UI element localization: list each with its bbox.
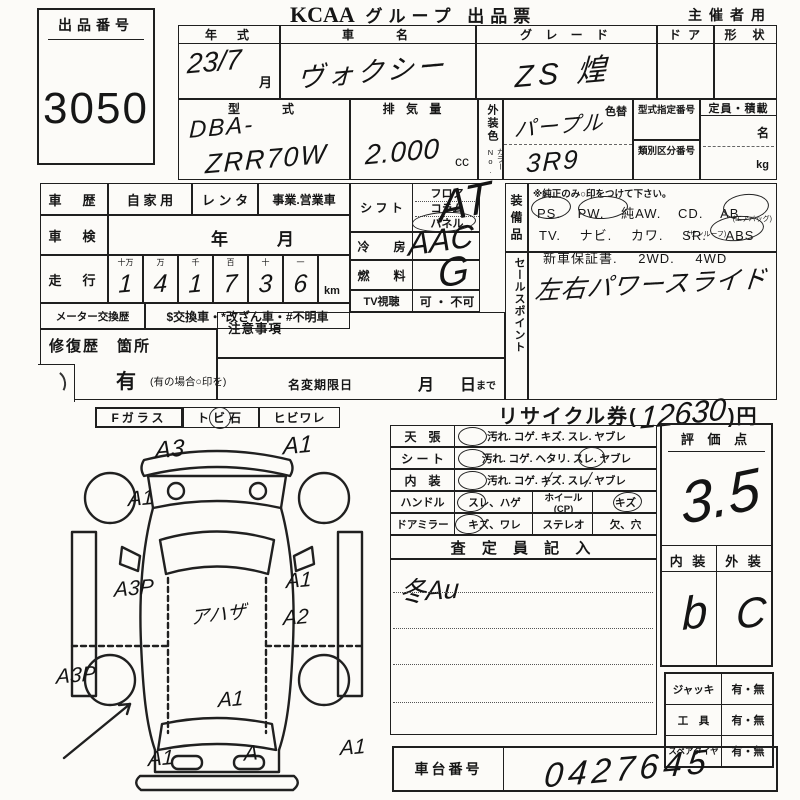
condition-row-roof: 天 張 汚れ. コゲ. キズ. スレ. ヤブレ [390,425,657,447]
history-rental: レ ン タ [192,183,258,215]
grade-label: グ レ ー ド [477,26,656,44]
class-no-cell: 類別区分番号 [633,140,700,180]
f-glass-label: Fガラス [95,407,183,428]
name-change-month: 月 [418,371,434,395]
inspection-label: 車 検 [40,215,108,255]
equip-tv: TV. [539,228,561,243]
score-value: 3.5 [679,454,763,538]
color-value: パープル [514,106,605,144]
rating-vdivider [716,545,717,665]
interior-grade: b [682,583,707,641]
digit-header: 百 [214,257,247,268]
equipment-label: 装備品 [505,183,528,252]
tv-options: 可 ・ 不可 [415,291,479,311]
score-label: 評 価 点 [668,429,765,452]
digit-header: 千 [179,257,212,268]
jack-value: 有・無 [724,674,772,704]
digit-header: 十万 [109,257,142,268]
condition-label: シ ー ト [391,448,455,468]
capacity-kg: kg [756,159,769,171]
sheet-title-text: グループ 出品票 [366,7,537,26]
name-change-label: 名変期限日 [288,376,353,393]
damage-mark: A1 [286,568,312,594]
fuel-label: 燃 料 [351,261,413,289]
shift-label: シ フ ト [351,184,413,231]
car-name-cell: 車 名 ヴォクシー [280,25,476,99]
condition-row-interior: 内 装 汚れ. コゲ. キズ. スレ. ヤブレ [390,469,657,491]
history-label: 車 歴 [40,183,108,215]
inspector-note: 冬Au [398,553,657,610]
damage-mark: A2 [283,605,309,631]
tv-row: TV視聴 可 ・ 不可 [350,290,480,312]
year-cell: 年 式 23/7 月 [178,25,280,99]
auction-number-value: 3050 [39,84,153,134]
inspection-year: 年 [211,225,228,250]
digit-value: 1 [109,268,143,300]
year-value: 23/7 [187,44,242,81]
mileage-unit-cell: km [318,255,350,303]
seat-dirt-circle [458,449,487,468]
ext-color-strip: 外装色 カラーNo. [478,99,503,180]
auction-number-label: 出品番号 [48,15,144,40]
history-private: 自 家 用 [108,183,192,215]
equip-kawa: カワ. [631,228,664,243]
stereo-option: 欠、穴 [595,514,656,534]
handle-label: ハンドル [391,492,455,512]
mileage-unit: km [324,285,340,297]
name-change-row: 名変期限日 月 日 まで [217,358,505,400]
damage-mark: A3 [155,435,185,466]
condition-label: 天 張 [391,426,455,446]
repair-note: (有の場合○印を) [150,374,226,389]
history-business: 事業.営業車 [258,183,350,215]
grade-cell: グ レ ー ド ZS 煌 [476,25,657,99]
inspection-month: 月 [277,225,294,250]
model-cell: 型 式 DBA- ZRR70W [178,99,350,180]
rating-divider2 [662,571,771,572]
color-cell: 色替 パープル 3R9 [503,99,633,180]
type-cert-label: 型式指定番号 [634,102,699,116]
chassis-label: 車台番号 [394,748,504,790]
writing-line [393,702,653,703]
color-no-value: 3R9 [526,144,581,180]
chassis-row: 車台番号 0427645 [392,746,778,792]
digit-header: 一 [284,257,317,268]
mirror-label: ドアミラー [391,514,455,534]
equip-cd: CD. [678,206,703,221]
model-code: ZRR70W [205,139,329,181]
class-no-label: 類別区分番号 [634,143,699,157]
door-cell: ド ア [657,25,714,99]
mileage-digit-cell: 一 6 [283,255,318,303]
condition-row-mirror: ドアミラー キズ、ワレ ステレオ 欠、穴 [390,513,657,535]
capacity-persons: 名 [757,124,769,141]
capacity-divider [703,146,774,147]
shape-label: 形 状 [715,26,776,44]
damage-mark: A1 [128,486,154,512]
shape-cell: 形 状 [714,25,777,99]
damage-mark: A1 [340,735,366,761]
displacement-label: 排 気 量 [351,100,477,116]
sales-point-cell: 左右パワースライド [528,252,777,400]
month-suffix: 月 [259,72,272,91]
damage-mark: A1 [283,431,313,462]
car-name-value: ヴォクシー [297,43,448,95]
capacity-label: 定員・積載 [701,100,776,116]
ext-color-label: 外装色 [484,104,500,143]
name-change-until: まで [476,377,496,392]
repair-yes: 有 [116,365,136,394]
digit-value: 6 [284,268,318,300]
mileage-digit-cell: 万 4 [143,255,178,303]
displacement-unit: cc [455,153,469,169]
damage-mark: A3P [56,662,96,690]
damage-mark: A1 [148,746,174,772]
wheel-label: ホイール(CP) [535,492,593,512]
color-change-label: 色替 [605,103,627,119]
equip-navi: ナビ. [580,228,613,243]
digit-value: 4 [144,268,178,300]
digit-value: 1 [179,268,213,300]
auction-sheet: 出品番号 3050 KCAA グループ 出品票 主催者用 年 式 23/7 月 … [0,0,800,800]
model-label: 型 式 [179,100,349,116]
condition-row-seat: シ ー ト 汚れ. コゲ. ヘタリ. スレ. ヤブレ [390,447,657,469]
inspection-cell: 年 月 [108,215,350,255]
name-change-day: 日 [460,371,476,395]
mileage-digit-cell: 十 3 [248,255,283,303]
damage-mark: A3P [114,575,154,603]
writing-line [393,628,653,629]
rating-box: 評 価 点 3.5 内 装 外 装 b C [660,423,773,667]
type-cert-cell: 型式指定番号 [633,99,700,140]
glass-crack-label: ヒビワレ [259,407,340,428]
digit-header: 十 [249,257,282,268]
writing-line [393,592,653,593]
door-label: ド ア [658,26,713,44]
chassis-value: 0427645 [543,742,713,796]
ac-label: 冷 房 [351,233,413,259]
repair-label: 修復歴 箇所 [49,335,151,356]
digit-value: 7 [214,268,248,300]
damage-mark: A1 [218,687,244,713]
damage-mark: A [244,741,259,766]
displacement-value: 2.000 [365,133,441,172]
model-prefix: DBA- [189,111,255,145]
year-label: 年 式 [179,26,279,44]
stone-circle-mark [209,407,231,429]
meter-label: メーター交換歴 [40,303,145,329]
writing-line [393,664,653,665]
mileage-label: 走 行 [40,255,108,303]
exterior-grade: C [735,587,767,639]
roof-dirt-circle [458,427,487,446]
car-name-label: 車 名 [281,26,475,44]
sales-point-label: セールスポイント [505,252,528,400]
displacement-cell: 排 気 量 2.000 cc [350,99,478,180]
digit-header: 万 [144,257,177,268]
caution-box: 注意事項 [217,312,505,358]
capacity-cell: 定員・積載 名 kg [700,99,777,180]
mileage-digit-cell: 千 1 [178,255,213,303]
interior-label: 内 装 [662,549,716,571]
exterior-label: 外 装 [718,549,771,571]
digit-value: 3 [249,268,283,300]
grade-value: ZS 煌 [514,44,612,97]
auction-number-box: 出品番号 3050 [37,8,155,165]
organizer-label: 主催者用 [688,5,772,25]
mileage-digit-cell: 百 7 [213,255,248,303]
accessory-row: 工 具 有・無 [666,705,772,736]
tv-label: TV視聴 [351,291,413,311]
stereo-label: ステレオ [535,514,593,534]
sales-point-value: 左右パワースライド [534,259,778,308]
inspector-writing-area: 冬Au [390,559,657,735]
interior-dirt-circle [458,471,487,490]
tools-label: 工 具 [666,705,722,735]
condition-label: 内 装 [391,470,455,490]
brand-logo: KCAA [290,2,355,27]
jack-label: ジャッキ [666,674,722,704]
caution-label: 注意事項 [228,318,282,337]
tools-value: 有・無 [724,705,772,735]
accessory-row: ジャッキ 有・無 [666,674,772,705]
mileage-digit-cell: 十万 1 [108,255,143,303]
